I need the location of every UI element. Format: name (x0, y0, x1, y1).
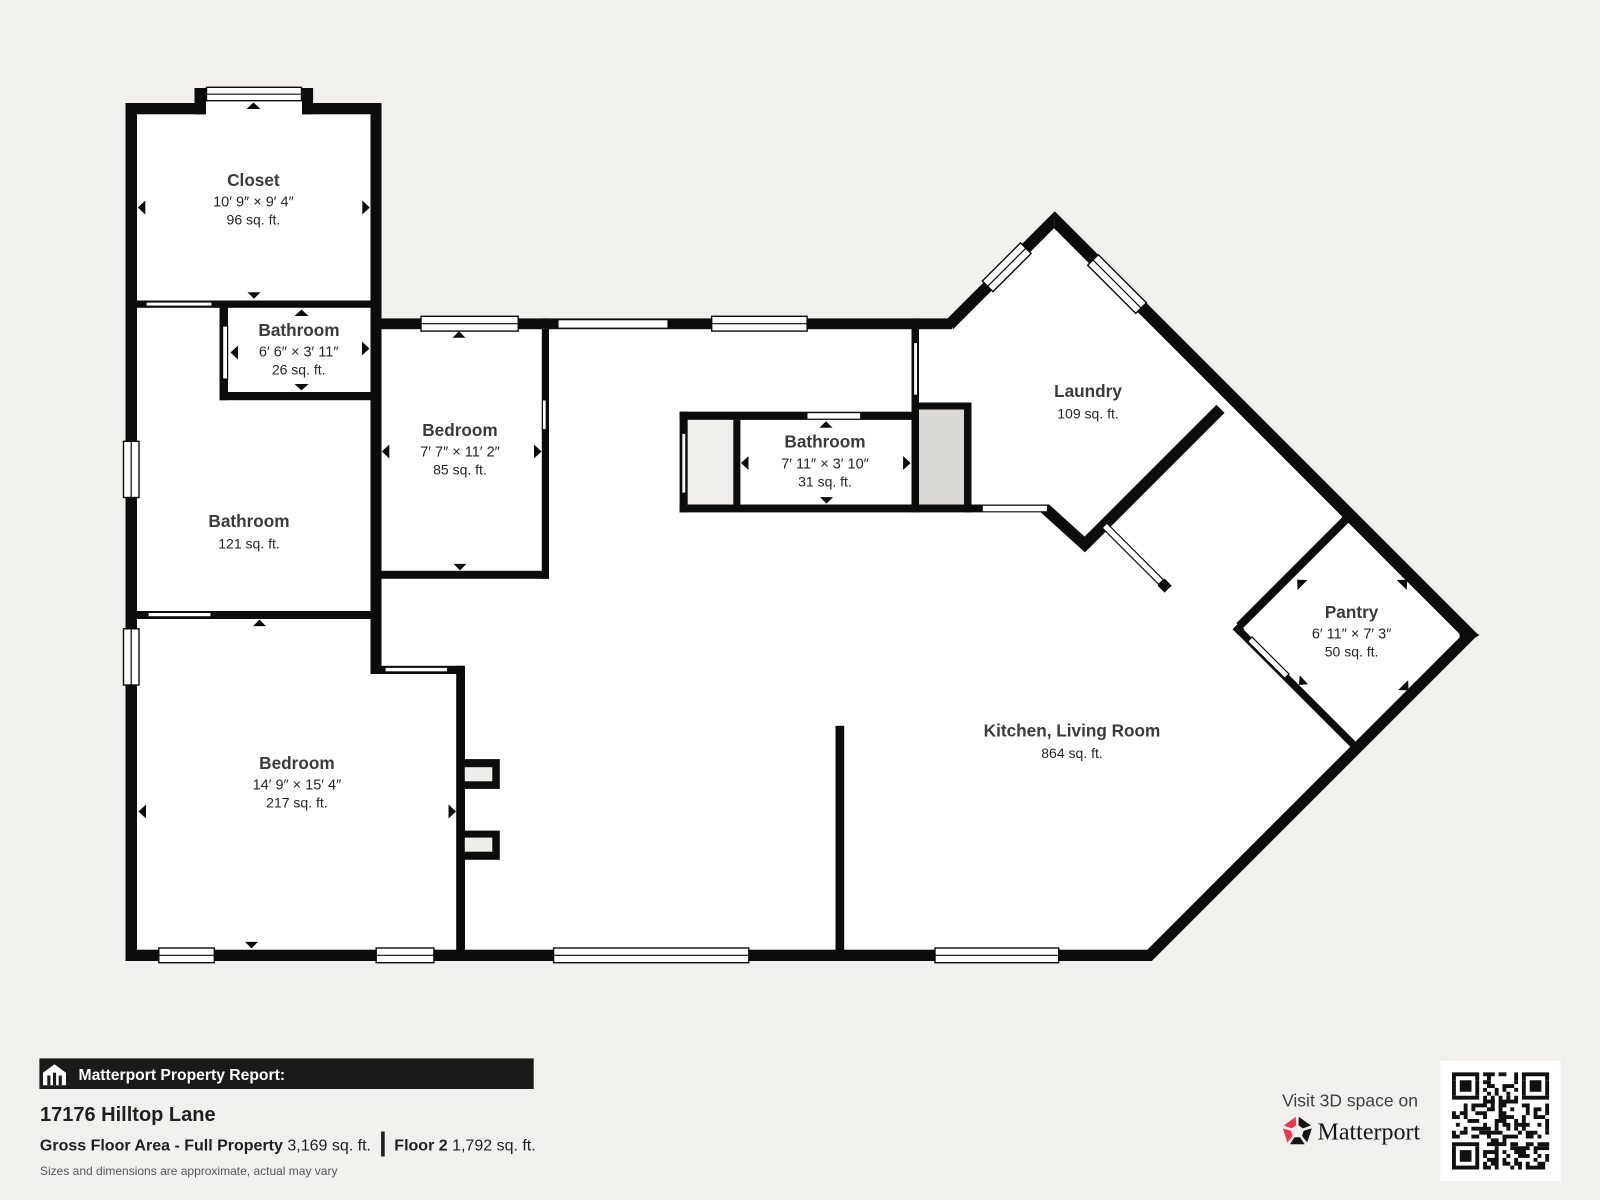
svg-text:6′ 11″ × 7′ 3″: 6′ 11″ × 7′ 3″ (1312, 626, 1392, 642)
svg-text:Closet: Closet (227, 170, 280, 190)
svg-text:121 sq. ft.: 121 sq. ft. (218, 536, 279, 552)
svg-text:Visit 3D space on: Visit 3D space on (1282, 1091, 1418, 1111)
svg-text:96 sq. ft.: 96 sq. ft. (227, 212, 281, 228)
svg-text:6′ 6″ × 3′ 11″: 6′ 6″ × 3′ 11″ (259, 345, 339, 361)
svg-text:864 sq. ft.: 864 sq. ft. (1041, 745, 1102, 761)
svg-text:31 sq. ft.: 31 sq. ft. (798, 474, 852, 490)
svg-text:Bathroom: Bathroom (784, 432, 865, 452)
svg-text:Bedroom: Bedroom (259, 753, 334, 773)
svg-text:17176 Hilltop Lane: 17176 Hilltop Lane (40, 1104, 216, 1126)
svg-text:7′ 7″ × 11′ 2″: 7′ 7″ × 11′ 2″ (420, 445, 500, 461)
svg-text:Sizes and dimensions are appro: Sizes and dimensions are approximate, ac… (40, 1164, 337, 1178)
svg-text:217 sq. ft.: 217 sq. ft. (266, 795, 327, 811)
svg-text:14′ 9″ × 15′ 4″: 14′ 9″ × 15′ 4″ (253, 778, 342, 794)
svg-text:10′ 9″ × 9′ 4″: 10′ 9″ × 9′ 4″ (213, 195, 294, 211)
svg-text:109 sq. ft.: 109 sq. ft. (1057, 406, 1118, 422)
svg-text:Floor 2 1,792 sq. ft.: Floor 2 1,792 sq. ft. (394, 1137, 535, 1154)
svg-text:Matterport: Matterport (1318, 1120, 1421, 1146)
svg-text:Matterport Property Report:: Matterport Property Report: (79, 1067, 286, 1084)
svg-text:26 sq. ft.: 26 sq. ft. (272, 362, 326, 378)
svg-text:Laundry: Laundry (1054, 381, 1122, 401)
svg-text:50 sq. ft.: 50 sq. ft. (1325, 644, 1379, 660)
svg-text:Bathroom: Bathroom (208, 511, 289, 531)
svg-text:85 sq. ft.: 85 sq. ft. (433, 462, 487, 478)
svg-text:Pantry: Pantry (1325, 602, 1379, 622)
svg-text:Gross Floor Area - Full Proper: Gross Floor Area - Full Property 3,169 s… (40, 1137, 371, 1154)
svg-text:Bedroom: Bedroom (422, 420, 497, 440)
svg-text:Kitchen, Living Room: Kitchen, Living Room (984, 721, 1161, 741)
svg-text:7′ 11″ × 3′ 10″: 7′ 11″ × 3′ 10″ (781, 457, 869, 473)
svg-text:Bathroom: Bathroom (258, 320, 339, 340)
